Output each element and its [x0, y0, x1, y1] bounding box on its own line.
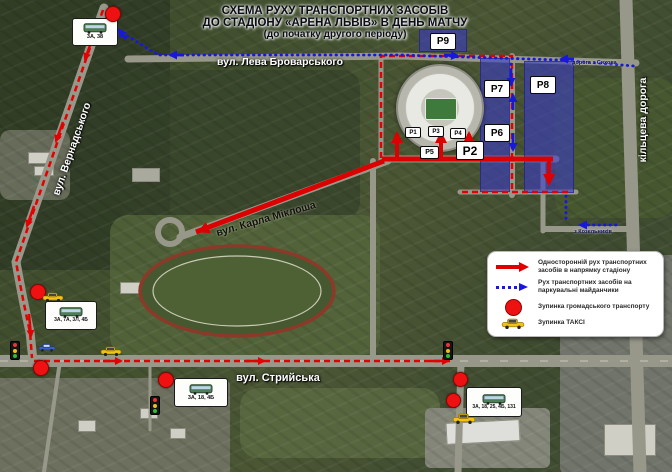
traffic-light-icon [443, 341, 453, 360]
legend-row-parking-route: Рух транспортних засобів на паркувальні … [494, 279, 657, 297]
note-road-from-kozelnyky: з Козельників [574, 229, 612, 235]
bus-stop-sign: 3А, 18, 4Б [174, 378, 228, 407]
bus-routes-label: 3А, 18, 4Б [188, 395, 214, 401]
route-parking-arrows [119, 30, 616, 225]
bus-routes-label: 3А, 7А, 3Л, 4Б [54, 318, 88, 324]
note-road-from-ring: дорога з Сихова [572, 60, 617, 66]
taxi-icon [42, 292, 64, 302]
street-label-kiltseva: кільцева дорога [637, 60, 649, 180]
parking-label-p8: P8 [530, 76, 556, 94]
legend-one-way-label: Односторонній рух транспортних засобів в… [538, 259, 657, 277]
title-line-3: (до початку другого періоду) [145, 29, 525, 40]
traffic-light-icon [10, 341, 20, 360]
transport-stop-marker [33, 360, 49, 376]
taxi-icon [452, 413, 476, 424]
bus-icon [188, 384, 214, 395]
one-way-arrow-icon [496, 262, 530, 272]
parking-label-p2: P2 [456, 141, 484, 160]
bus-routes-label: 3А, 38 [87, 34, 103, 40]
taxi-icon [501, 318, 525, 329]
legend: Односторонній рух транспортних засобів в… [487, 251, 664, 337]
transport-stop-marker [446, 393, 461, 408]
legend-row-one-way: Односторонній рух транспортних засобів в… [494, 259, 657, 277]
parking-label-p7: P7 [484, 80, 510, 98]
parking-label-p4: P4 [450, 128, 466, 139]
taxi-icon [100, 346, 122, 356]
parking-route-arrow-icon [496, 282, 530, 292]
legend-row-public-stop: Зупинка громадського транспорту [494, 299, 657, 316]
legend-taxi-stop-label: Зупинка ТАКСІ [538, 319, 585, 328]
transport-stop-marker [453, 372, 468, 387]
car-icon [38, 343, 56, 352]
parking-label-p5: P5 [420, 146, 439, 159]
title-line-1: СХЕМА РУХУ ТРАНСПОРТНИХ ЗАСОБІВ [145, 5, 525, 17]
routes-layer [0, 0, 672, 472]
bus-stop-sign: 3А, 7А, 3Л, 4Б [45, 301, 97, 330]
parking-label-p3: P3 [428, 126, 444, 137]
traffic-light-icon [150, 396, 160, 415]
transport-stop-marker [158, 372, 174, 388]
title-line-2: ДО СТАДІОНУ «АРЕНА ЛЬВІВ» В ДЕНЬ МАТЧУ [145, 17, 525, 29]
street-label-stryiska: вул. Стрийська [208, 372, 348, 384]
transport-stop-marker [105, 6, 121, 22]
parking-label-p1: P1 [405, 127, 421, 138]
legend-public-stop-label: Зупинка громадського транспорту [538, 303, 649, 312]
parking-label-p6: P6 [484, 124, 510, 142]
traffic-scheme-map: P9 P7 P8 P6 P2 P5 P1 P3 P4 СХЕМА РУХУ ТР… [0, 0, 672, 472]
stop-circle-icon [505, 299, 522, 316]
map-title: СХЕМА РУХУ ТРАНСПОРТНИХ ЗАСОБІВ ДО СТАДІ… [145, 5, 525, 40]
legend-row-taxi: Зупинка ТАКСІ [494, 318, 657, 329]
bus-stop-sign: 3А, 38 [72, 18, 118, 46]
bus-routes-label: 3А, 18, 25, 4Б, 131 [472, 405, 515, 411]
legend-parking-route-label: Рух транспортних засобів на паркувальні … [538, 279, 657, 297]
bus-icon [82, 23, 108, 34]
street-label-brovarskoho: вул. Лева Броварського [200, 56, 360, 68]
route-parking-dotted [118, 30, 634, 219]
